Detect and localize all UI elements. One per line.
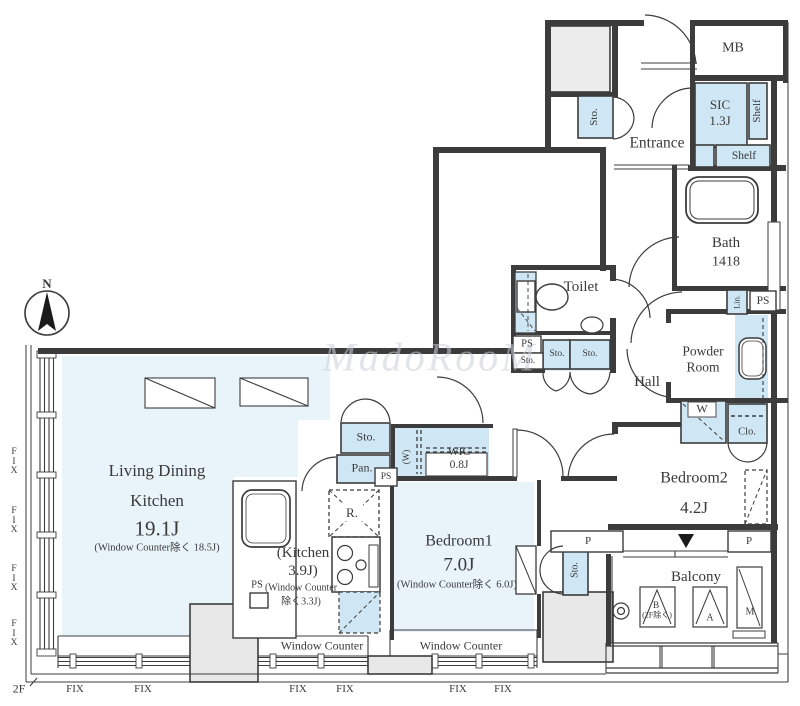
room-label-mb: MB — [722, 40, 744, 55]
fix-label-bottom-4: FIX — [336, 684, 354, 696]
room-label-wic: WIC — [448, 446, 470, 458]
storage-label-entrance-sto: Sto. — [589, 108, 601, 125]
storage-label-hall-small: Sto. — [521, 356, 535, 366]
shelf-label-vertical: Shelf — [752, 99, 764, 122]
watermark: MadoRooM — [322, 335, 537, 378]
size-label-bedroom1: 7.0J — [443, 556, 474, 577]
compass-icon — [25, 291, 69, 335]
pantry-label: Pan. — [352, 462, 373, 475]
fridge-label: R. — [346, 506, 358, 520]
floor-tag: 2F — [13, 683, 26, 696]
note-label-bedroom1: (Window Counter除く 6.0J) — [397, 579, 517, 590]
size-label-bedroom2: 4.2J — [680, 499, 708, 517]
room-label-bedroom2: Bedroom2 — [660, 469, 728, 486]
storage-label-ldk: Sto. — [356, 431, 375, 444]
shelf-label-horizontal: Shelf — [732, 150, 756, 162]
size-label-bath: 1418 — [712, 254, 740, 269]
ac-label-b: B — [653, 601, 659, 611]
window-counter-label-kitchen: Window Counter — [281, 640, 364, 653]
storage-label-bedroom1: Sto. — [571, 562, 582, 578]
closet-label: Clo. — [738, 426, 756, 437]
size-label-wic: 0.8J — [450, 459, 469, 471]
room-label-powder-2: Room — [686, 361, 719, 376]
fix-label-bottom-2: FIX — [134, 684, 152, 696]
fix-label-bottom-3: FIX — [289, 684, 307, 696]
room-label-kitchen-1: (Kitchen — [277, 545, 329, 561]
storage-label-hall-2: Sto. — [582, 349, 597, 359]
ps-label-toilet: PS — [521, 338, 533, 349]
linen-label: Lin. — [732, 295, 741, 309]
room-label-bedroom1: Bedroom1 — [425, 532, 493, 549]
room-label-kitchen-2: 3.9J) — [288, 563, 318, 579]
ps-label-bath: PS — [757, 295, 770, 307]
room-label-hall: Hall — [634, 374, 660, 390]
room-label-ldk-2: Kitchen — [130, 492, 184, 510]
compass-north-label: N — [42, 277, 51, 291]
room-label-bath: Bath — [712, 235, 740, 251]
room-label-powder-1: Powder — [682, 345, 723, 360]
washer-label: W — [696, 403, 707, 416]
fix-label-bottom-5: FIX — [449, 684, 467, 696]
fix-label-bottom-1: FIX — [66, 684, 84, 696]
size-label-ldk: 19.1J — [135, 518, 180, 541]
ac-label-b-note: (2F除く) — [642, 612, 672, 621]
ac-label-m: M — [746, 608, 755, 619]
balcony-entry-marker — [678, 534, 694, 548]
room-label-entrance: Entrance — [629, 136, 684, 153]
pipe-label-left: P — [585, 536, 591, 548]
note-label-kitchen-1: (Window Counter — [265, 584, 337, 595]
floor-plan: MadoRooM N 2F MB Entrance SIC 1.3J Bath … — [0, 0, 800, 706]
ps-label-kitchen: PS — [251, 579, 263, 590]
window-counter-label-bedroom1: Window Counter — [420, 640, 503, 653]
fix-label-left-3: F I X — [11, 565, 18, 594]
room-label-toilet: Toilet — [564, 279, 599, 295]
fix-label-bottom-6: FIX — [494, 684, 512, 696]
pipe-label-right: P — [746, 536, 752, 548]
room-label-balcony: Balcony — [671, 569, 721, 585]
ac-label-a: A — [706, 614, 713, 625]
room-label-ldk-1: Living Dining — [109, 462, 206, 480]
ps-label-wic: PS — [381, 472, 392, 482]
fix-label-left-1: F I X — [11, 448, 18, 477]
note-label-kitchen-2: 除く3.3J) — [281, 598, 321, 609]
storage-label-hall-1: Sto. — [549, 349, 564, 359]
size-label-sic: 1.3J — [709, 114, 730, 128]
note-label-ldk: (Window Counter除く 18.5J) — [94, 542, 219, 553]
room-label-sic: SIC — [710, 98, 730, 112]
washer-rotated-label: (W) — [402, 450, 412, 465]
fix-label-left-4: F I X — [11, 620, 18, 649]
fix-label-left-2: F I X — [11, 507, 18, 536]
